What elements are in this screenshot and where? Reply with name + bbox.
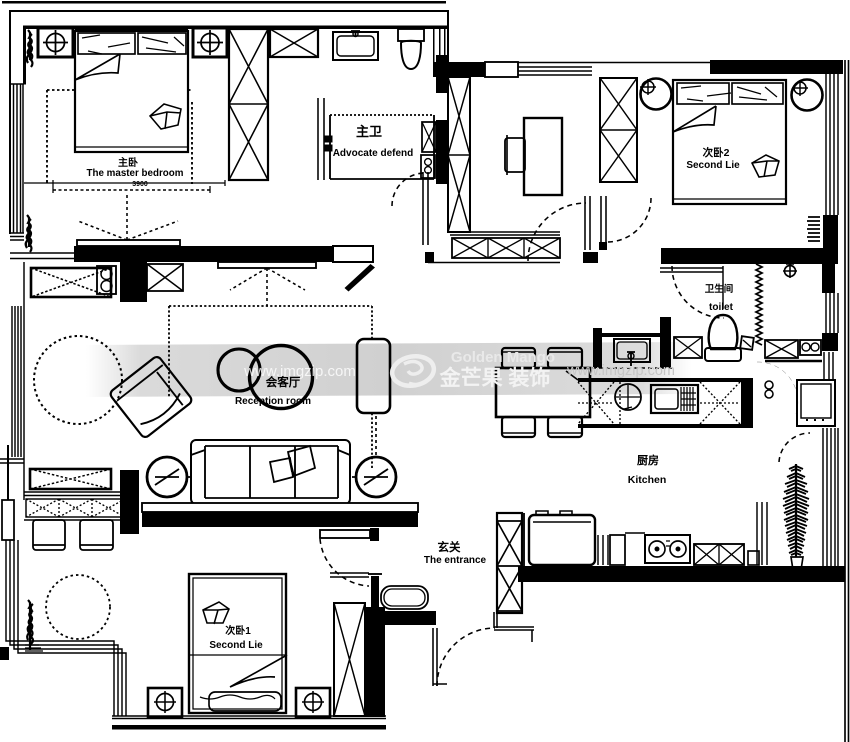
svg-text:Advocate defend: Advocate defend: [333, 148, 414, 159]
svg-text:Second Lie: Second Lie: [686, 160, 740, 171]
svg-text:次卧2: 次卧2: [703, 146, 730, 159]
svg-text:主卫: 主卫: [356, 124, 382, 139]
svg-text:Golden Mango: Golden Mango: [451, 349, 555, 366]
svg-text:3900: 3900: [132, 181, 148, 188]
svg-text:toilet: toilet: [709, 302, 734, 313]
svg-text:厨房: 厨房: [637, 453, 659, 467]
svg-text:Reception room: Reception room: [235, 396, 311, 407]
svg-text:金芒果 装饰: 金芒果 装饰: [439, 366, 551, 390]
svg-text:The entrance: The entrance: [424, 555, 487, 566]
svg-text:Second Lie: Second Lie: [209, 640, 263, 651]
svg-text:卫生间: 卫生间: [705, 283, 734, 295]
svg-text:The master bedroom: The master bedroom: [87, 168, 184, 179]
svg-text:次卧1: 次卧1: [225, 624, 251, 637]
svg-text:Kitchen: Kitchen: [628, 474, 667, 486]
svg-text:会客厅: 会客厅: [265, 375, 301, 389]
svg-text:玄关: 玄关: [438, 540, 461, 554]
svg-text:www.imgzip.com: www.imgzip.com: [566, 363, 675, 379]
